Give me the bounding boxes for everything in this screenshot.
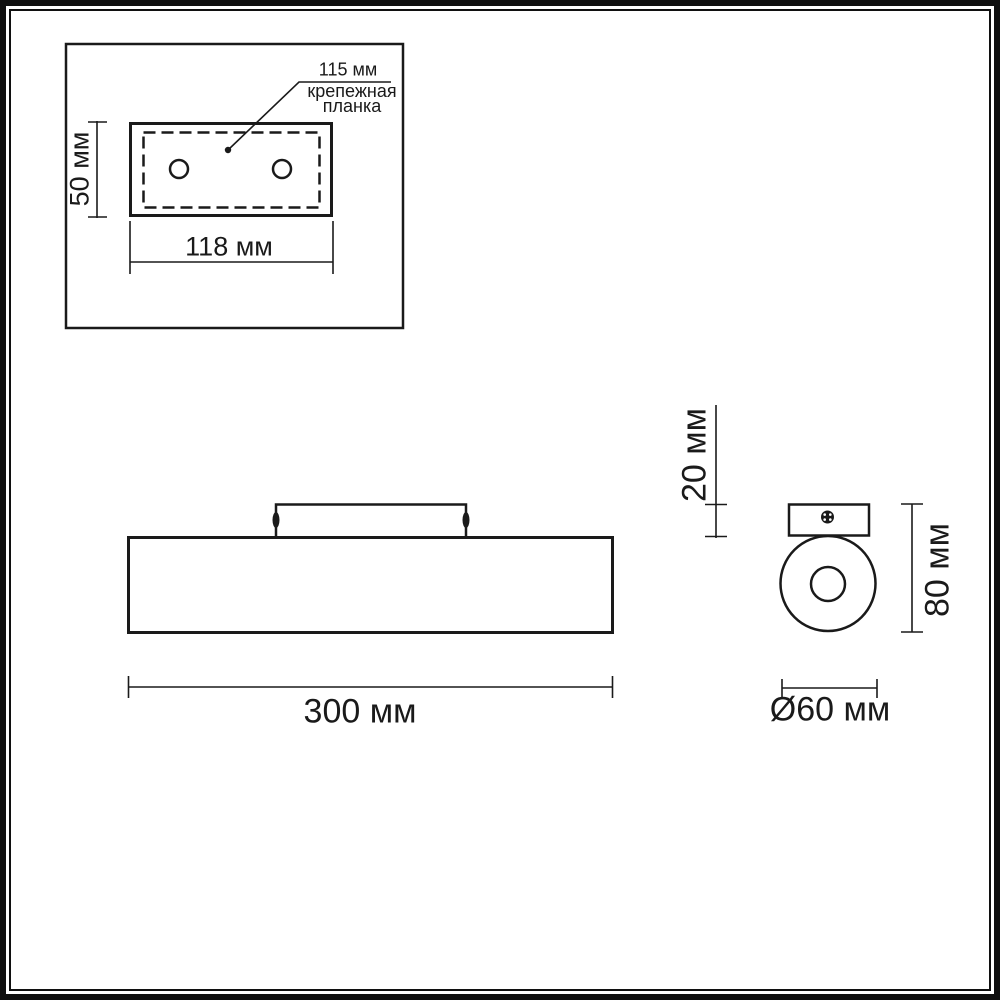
plate-clip-right <box>463 512 470 528</box>
front-width-dimension-label: 300 мм <box>304 693 417 732</box>
callout-dimension-label: 115 мм <box>319 60 377 81</box>
callout-name-line2: планка <box>307 99 396 114</box>
technical-drawing-page: { "colors": { "line": "#1a1a1a", "backgr… <box>0 0 1000 1000</box>
fixture-side-view <box>705 405 923 698</box>
total-height-dimension-label: 80 мм <box>919 523 958 617</box>
screw-hole-right <box>273 160 291 178</box>
detail-width-dimension-label: 118 мм <box>185 232 273 263</box>
detail-height-dimension-label: 50 мм <box>65 132 96 207</box>
diameter-dimension-label: Ø60 мм <box>770 691 890 730</box>
fixture-front-view <box>129 505 613 699</box>
body-inner-circle <box>811 567 845 601</box>
plate-screw-head <box>821 511 834 524</box>
plate-height-dimension-label: 20 мм <box>676 408 715 502</box>
dimension-drawing <box>0 0 1000 1000</box>
front-mounting-plate <box>276 505 466 538</box>
front-body-outline <box>129 538 613 633</box>
screw-hole-left <box>170 160 188 178</box>
callout-name-label: крепежная планка <box>307 84 396 114</box>
plate-clip-left <box>273 512 280 528</box>
mounting-plate-outline <box>131 124 332 216</box>
